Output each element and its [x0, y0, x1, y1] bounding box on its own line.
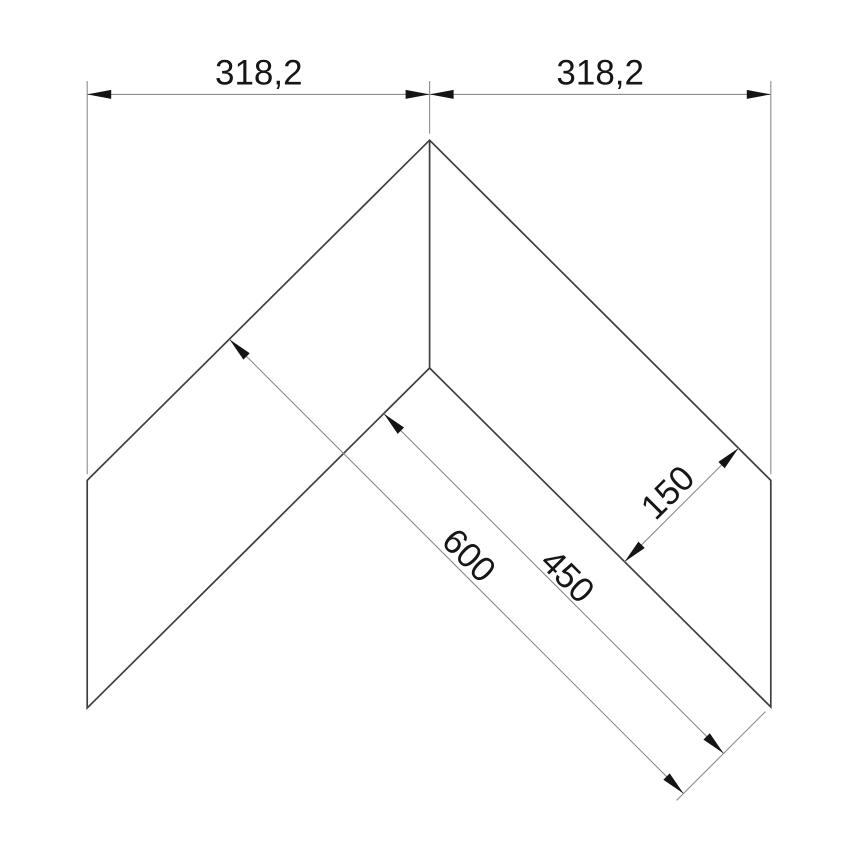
svg-text:318,2: 318,2: [215, 54, 303, 93]
svg-text:318,2: 318,2: [556, 54, 644, 93]
